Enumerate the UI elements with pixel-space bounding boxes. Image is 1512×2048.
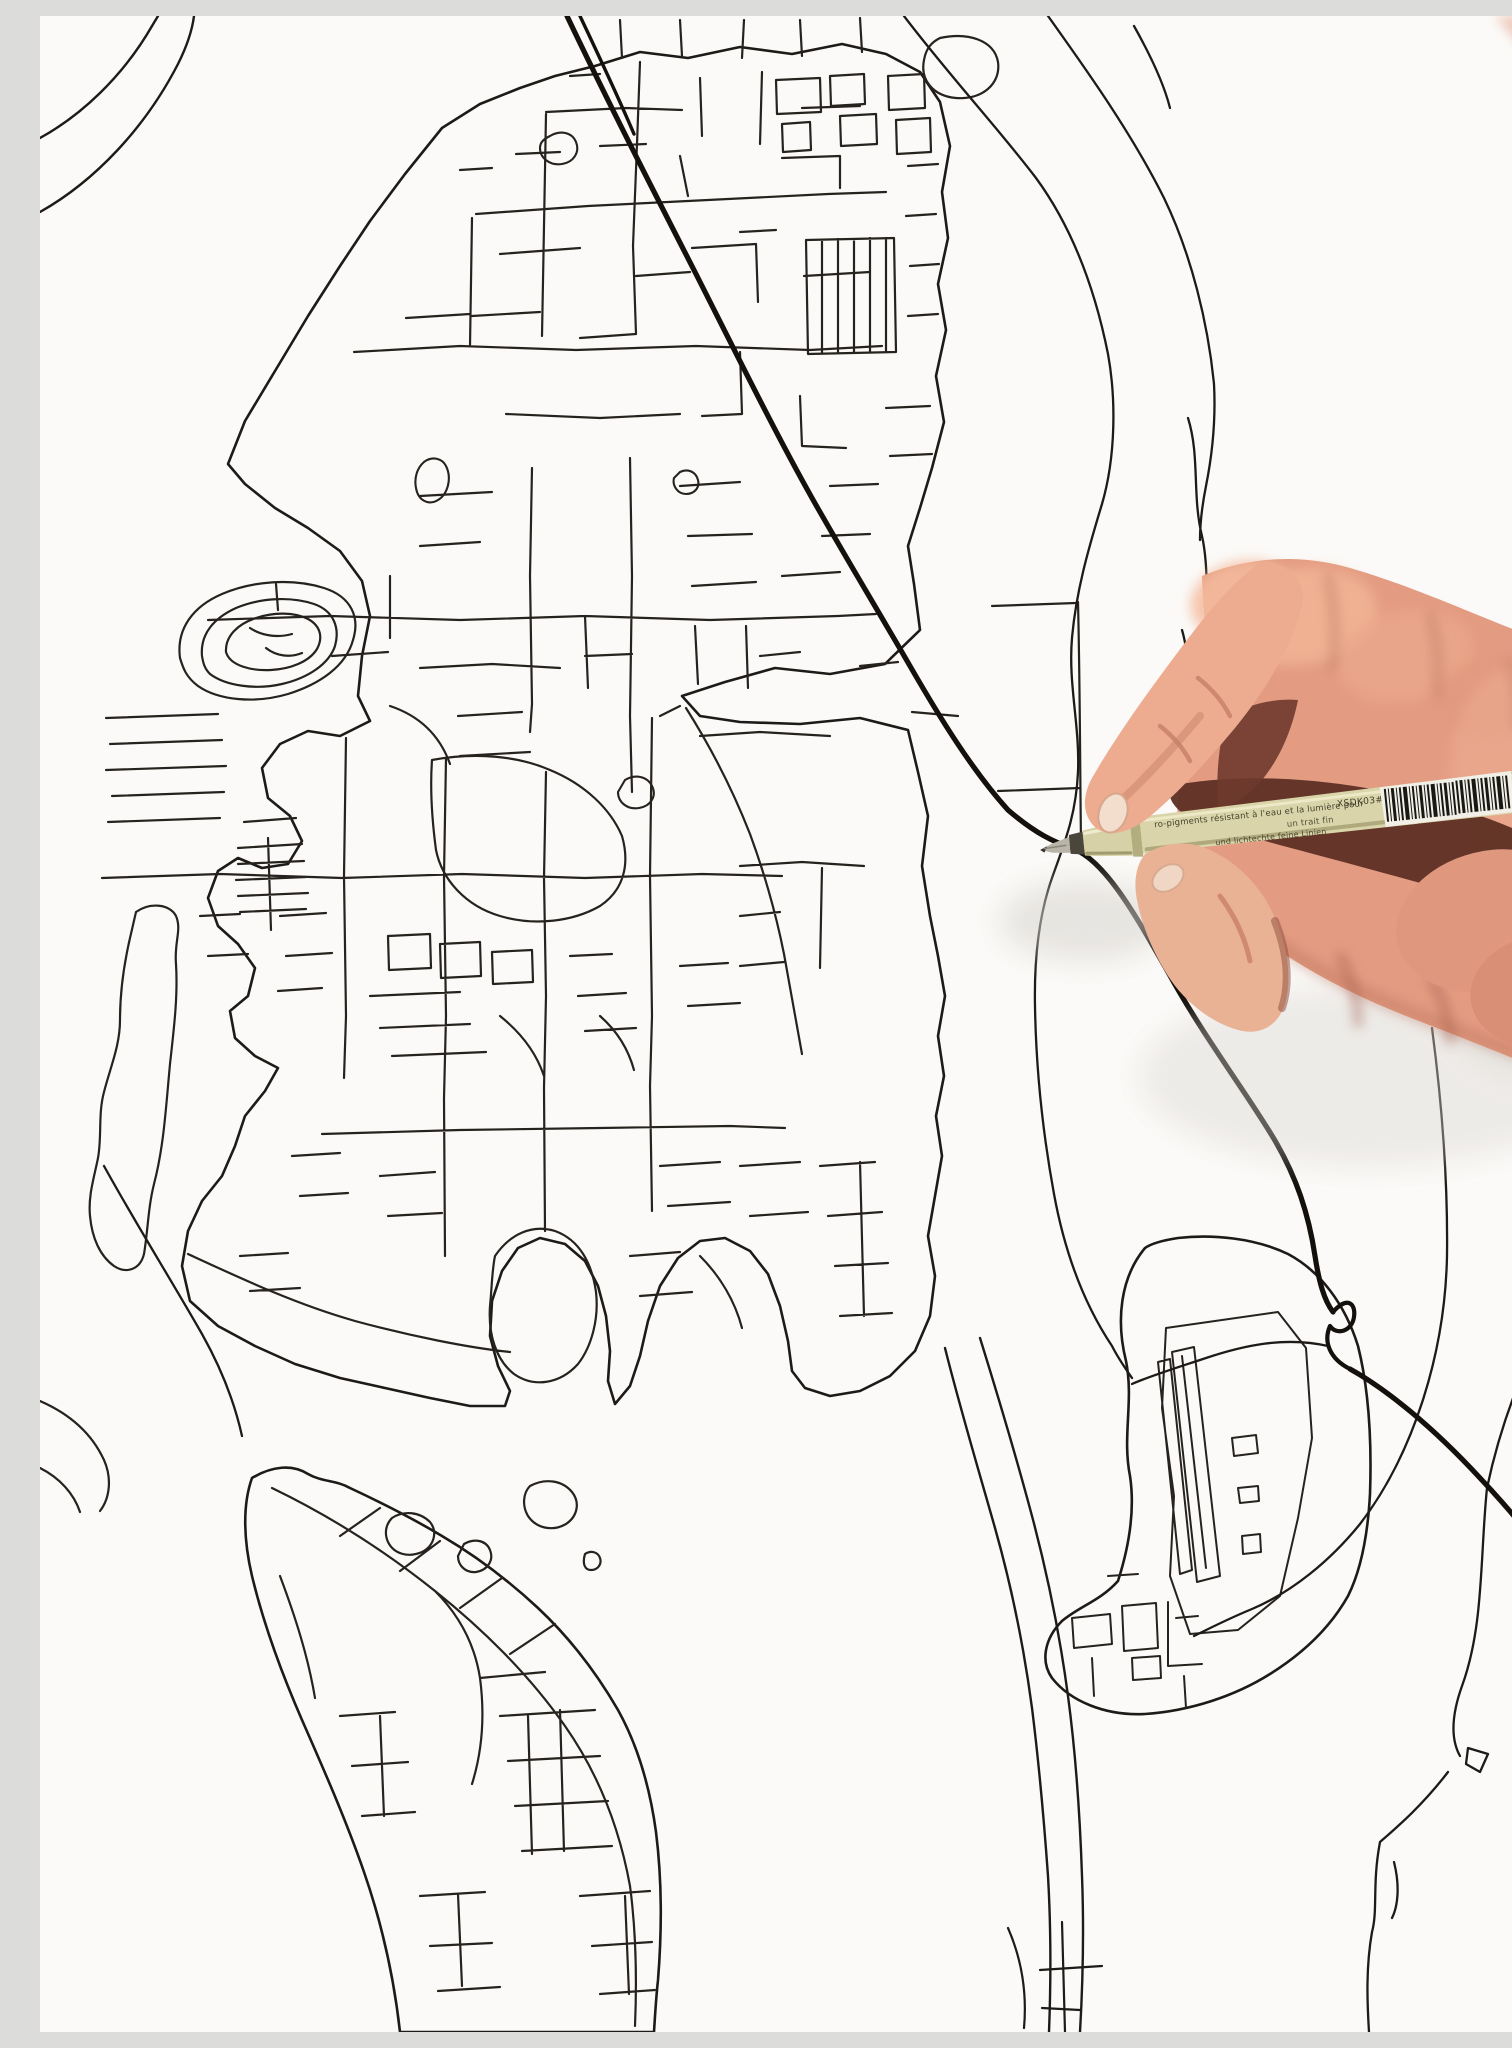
photo-canvas: ro-pigments résistant à l'eau et la lumi… bbox=[40, 16, 1512, 2032]
left-edge-shore bbox=[40, 1401, 109, 1512]
north-road-network bbox=[354, 18, 939, 456]
map-contour-island bbox=[179, 582, 355, 700]
tail-coast-west bbox=[945, 1348, 1050, 2032]
map-islets bbox=[40, 906, 601, 1572]
mid-road-network bbox=[106, 458, 1081, 930]
corner-skin-reflection bbox=[1495, 16, 1512, 90]
map-south-island bbox=[245, 1468, 661, 2032]
contour-ring-inner bbox=[226, 614, 320, 671]
tail-coast-east bbox=[980, 1338, 1083, 2032]
corner-blush bbox=[1495, 16, 1512, 90]
south-road-network bbox=[102, 708, 892, 1382]
map-airport-peninsula bbox=[1045, 1237, 1370, 1715]
bold-route-tail bbox=[1350, 1369, 1512, 1565]
map-far-coast bbox=[40, 16, 194, 212]
far-coast-lines bbox=[40, 16, 194, 212]
west-sand-spit bbox=[90, 906, 179, 1270]
map-roads-south bbox=[102, 708, 892, 1382]
map-lakes bbox=[415, 133, 698, 809]
lakes bbox=[415, 133, 698, 809]
scene-svg: ro-pigments résistant à l'eau et la lumi… bbox=[40, 16, 1512, 2032]
airport-runway-and-town bbox=[1072, 1312, 1312, 1708]
map-se-tail bbox=[945, 1338, 1102, 2032]
pen-collar bbox=[1069, 832, 1085, 856]
scene-root: ro-pigments résistant à l'eau et la lumi… bbox=[40, 16, 1512, 2032]
map-roads-mid bbox=[106, 458, 1081, 930]
striped-block bbox=[806, 238, 896, 354]
contour-ring-mid bbox=[202, 599, 337, 687]
bold-route-loop bbox=[1327, 1303, 1354, 1369]
contour-inner-marks bbox=[250, 584, 302, 656]
south-island-coastline bbox=[245, 1468, 661, 2032]
